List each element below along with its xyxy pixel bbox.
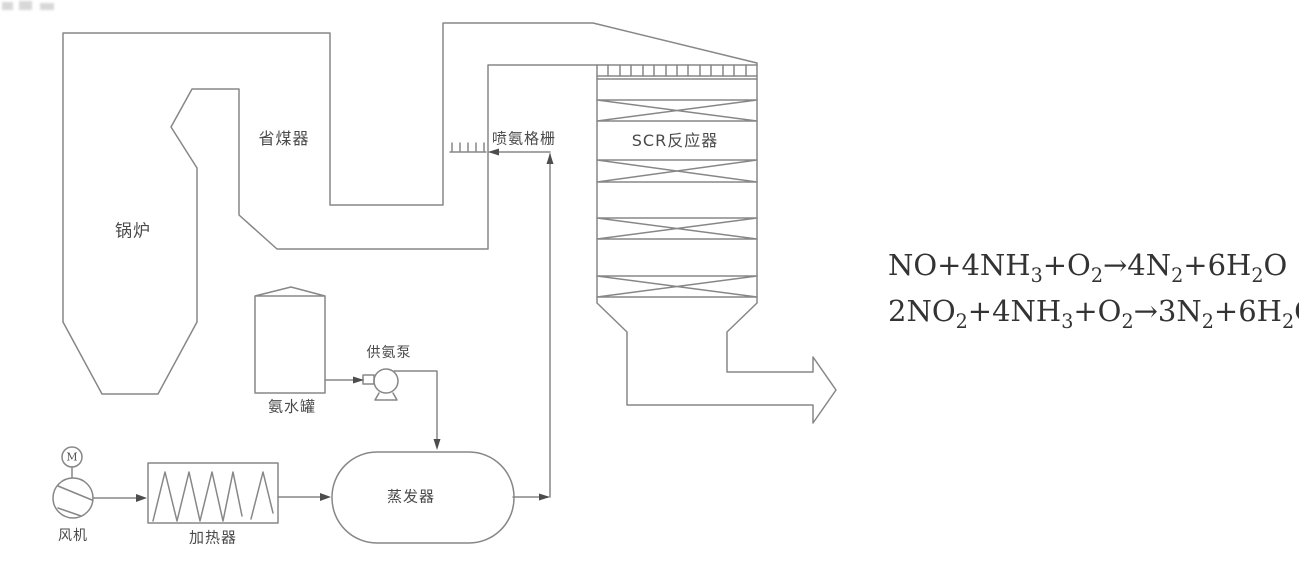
air-line bbox=[93, 497, 327, 498]
arrow-feed-into-grid bbox=[488, 149, 499, 156]
process-flow-diagram: 锅炉 省煤器 喷氨格栅 SCR反应器 氨水罐 供氨泵 蒸发器 风机 加热器 M … bbox=[0, 0, 1299, 567]
catalyst-layer bbox=[597, 276, 757, 297]
heater-symbol bbox=[148, 463, 278, 523]
reaction-equation-1: NO+4NH3+O2→4N2+6H2O bbox=[888, 242, 1299, 288]
arrow-pump-to-evaporator bbox=[434, 439, 441, 450]
ammonia-tank-label: 氨水罐 bbox=[268, 400, 316, 415]
motor-label: M bbox=[66, 452, 77, 463]
ammonia-tank-symbol bbox=[255, 287, 325, 393]
arrow-evaporator-to-riser bbox=[539, 494, 550, 501]
scr-straightener-grid bbox=[597, 65, 757, 79]
catalyst-layer bbox=[597, 160, 757, 182]
ammonia-pump-symbol bbox=[325, 369, 437, 446]
boiler-label: 锅炉 bbox=[115, 224, 151, 241]
economizer-label: 省煤器 bbox=[258, 131, 309, 147]
catalyst-layer bbox=[597, 218, 757, 239]
fan-label: 风机 bbox=[58, 529, 88, 543]
flow-arrowheads bbox=[136, 149, 554, 503]
scr-reactor-label: SCR反应器 bbox=[632, 133, 718, 149]
ammonia-pump-label: 供氨泵 bbox=[367, 346, 412, 360]
evaporator-label: 蒸发器 bbox=[387, 490, 435, 505]
reaction-equations: NO+4NH3+O2→4N2+6H2O 2NO2+4NH3+O2→3N2+6H2… bbox=[888, 242, 1299, 334]
reaction-equation-2: 2NO2+4NH3+O2→3N2+6H2O bbox=[888, 288, 1299, 334]
heater-label: 加热器 bbox=[189, 531, 237, 546]
catalyst-layer bbox=[597, 100, 757, 121]
scr-reactor bbox=[597, 65, 757, 297]
ammonia-injection-grid-label: 喷氨格栅 bbox=[492, 132, 556, 147]
arrow-feed-up bbox=[547, 153, 554, 164]
arrow-heater-to-evaporator bbox=[320, 493, 331, 501]
arrow-fan-to-heater bbox=[136, 494, 147, 502]
ammonia-injection-grid-symbol bbox=[450, 143, 486, 152]
ammonia-feed-line bbox=[490, 152, 550, 497]
